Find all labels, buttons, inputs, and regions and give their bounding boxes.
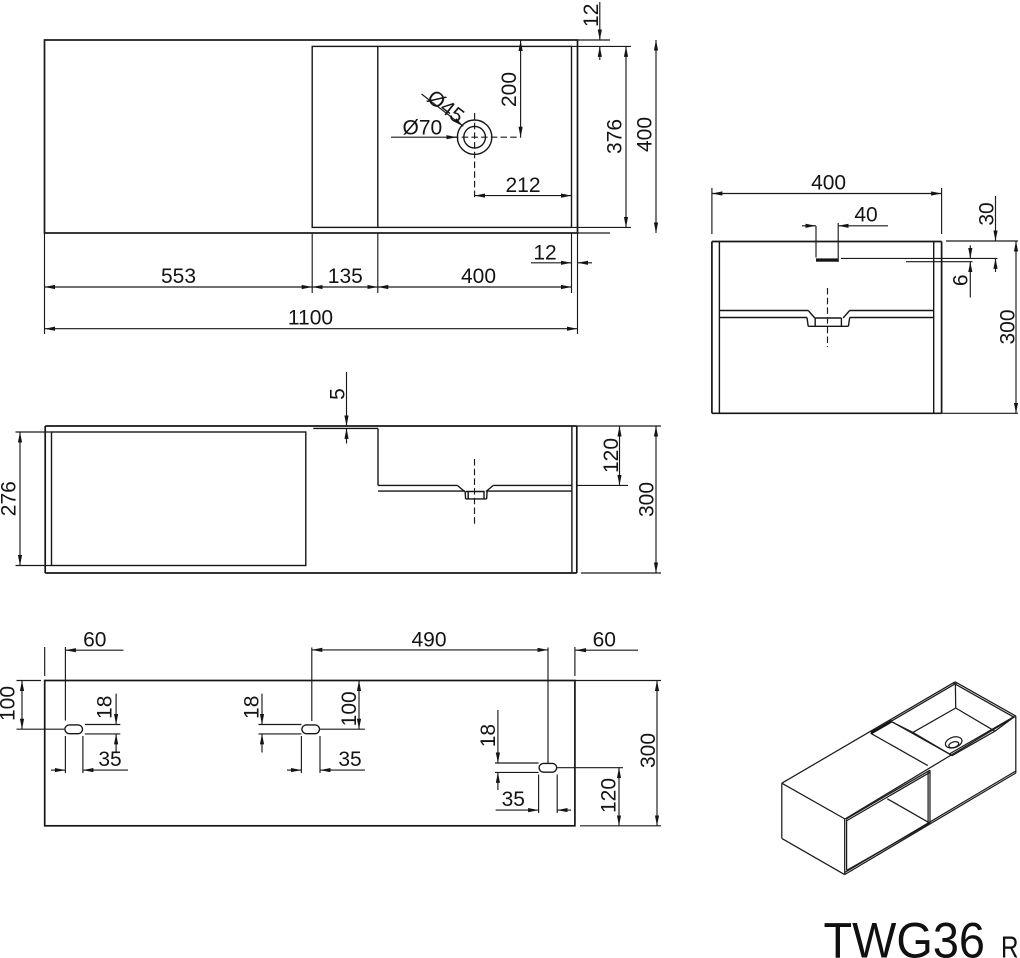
- svg-text:400: 400: [634, 117, 657, 152]
- svg-text:135: 135: [328, 265, 363, 288]
- svg-text:120: 120: [600, 438, 623, 473]
- svg-text:12: 12: [533, 242, 556, 265]
- svg-text:12: 12: [580, 4, 603, 27]
- svg-text:60: 60: [83, 628, 106, 651]
- svg-text:TWG36: TWG36: [824, 913, 986, 958]
- svg-text:276: 276: [0, 481, 21, 516]
- svg-text:35: 35: [98, 748, 121, 771]
- svg-text:1100: 1100: [288, 307, 333, 330]
- svg-text:200: 200: [498, 72, 521, 107]
- svg-text:5: 5: [327, 388, 350, 400]
- svg-text:R: R: [1001, 930, 1019, 958]
- svg-text:490: 490: [411, 628, 446, 651]
- svg-text:300: 300: [997, 309, 1020, 344]
- svg-text:Ø70: Ø70: [403, 116, 443, 139]
- svg-text:60: 60: [593, 628, 616, 651]
- svg-text:35: 35: [502, 788, 525, 811]
- svg-text:400: 400: [461, 265, 496, 288]
- svg-text:100: 100: [338, 691, 361, 726]
- svg-text:6: 6: [950, 274, 973, 286]
- svg-text:376: 376: [604, 119, 627, 154]
- svg-text:300: 300: [637, 733, 660, 768]
- svg-text:300: 300: [635, 482, 658, 517]
- svg-text:400: 400: [811, 172, 846, 195]
- svg-text:30: 30: [976, 202, 999, 225]
- svg-text:40: 40: [854, 204, 877, 227]
- svg-text:212: 212: [505, 174, 540, 197]
- svg-text:18: 18: [477, 724, 500, 747]
- svg-text:18: 18: [94, 696, 117, 719]
- svg-text:35: 35: [338, 748, 361, 771]
- svg-text:18: 18: [241, 696, 264, 719]
- svg-text:553: 553: [161, 265, 196, 288]
- svg-text:120: 120: [598, 778, 621, 813]
- svg-text:100: 100: [0, 686, 20, 721]
